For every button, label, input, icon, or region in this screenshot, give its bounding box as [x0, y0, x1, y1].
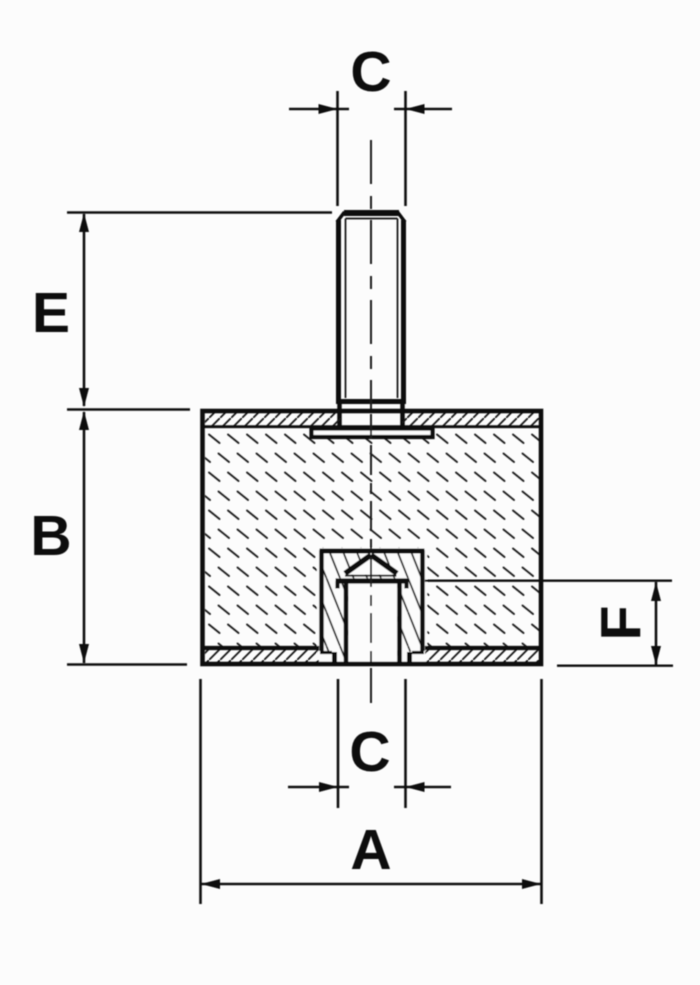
svg-text:C: C: [349, 720, 390, 784]
svg-text:A: A: [350, 818, 391, 882]
svg-text:B: B: [30, 504, 71, 568]
svg-text:E: E: [32, 281, 70, 345]
svg-text:C: C: [350, 40, 391, 104]
svg-text:F: F: [590, 606, 654, 641]
